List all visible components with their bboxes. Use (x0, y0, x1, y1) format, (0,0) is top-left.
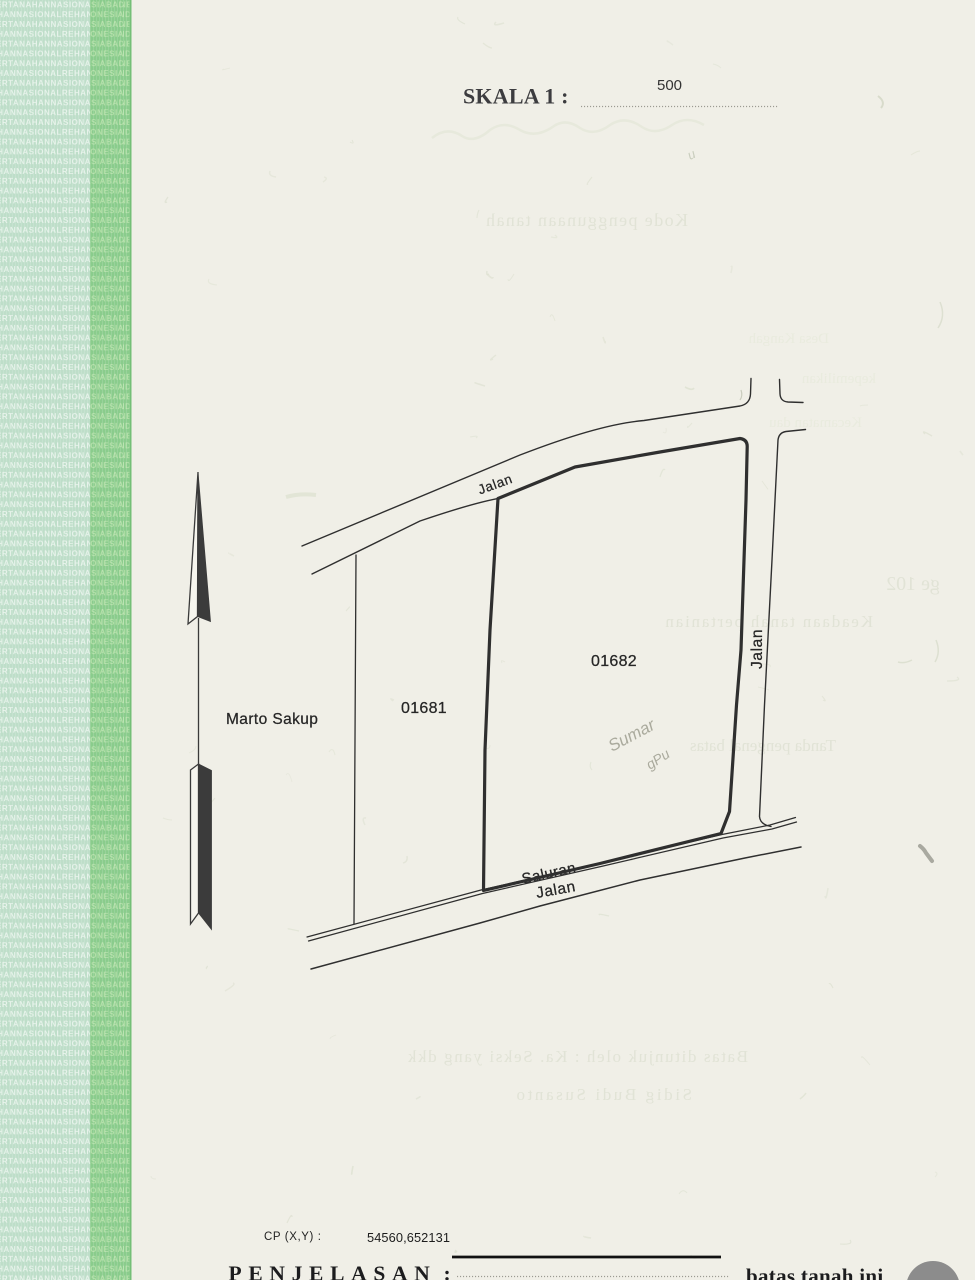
svg-text:01681: 01681 (401, 700, 447, 717)
svg-text:Marto Sakup: Marto Sakup (226, 711, 318, 728)
svg-text:SKALA 1 :: SKALA 1 : (463, 84, 569, 109)
svg-text:Jalan: Jalan (749, 629, 766, 669)
svg-text:Sidig Budi Susanto: Sidig Budi Susanto (514, 1085, 692, 1104)
svg-text:01682: 01682 (591, 653, 637, 670)
svg-text::: : (444, 1262, 451, 1280)
svg-text:Kecamatan dau: Kecamatan dau (769, 415, 862, 431)
svg-text:u: u (685, 146, 698, 163)
svg-text:500: 500 (657, 77, 682, 94)
svg-text:gPu: gPu (643, 745, 673, 772)
svg-text:Kode penggunaan tanah: Kode penggunaan tanah (485, 210, 688, 230)
svg-text:Desa Kangah: Desa Kangah (748, 331, 829, 347)
svg-text:Batas ditunjuk oleh : Ka. Seks: Batas ditunjuk oleh : Ka. Seksi yang dkk (406, 1047, 748, 1066)
svg-text:54560,652131: 54560,652131 (367, 1230, 450, 1245)
svg-text:Sumar: Sumar (605, 715, 659, 756)
svg-text:batas tanah ini: batas tanah ini (746, 1264, 884, 1280)
svg-text:ge 102: ge 102 (886, 573, 940, 595)
svg-text:kepemilikan: kepemilikan (801, 371, 876, 387)
svg-text:CP (X,Y) :: CP (X,Y) : (264, 1231, 322, 1243)
svg-text:PENJELASAN: PENJELASAN (229, 1262, 437, 1280)
